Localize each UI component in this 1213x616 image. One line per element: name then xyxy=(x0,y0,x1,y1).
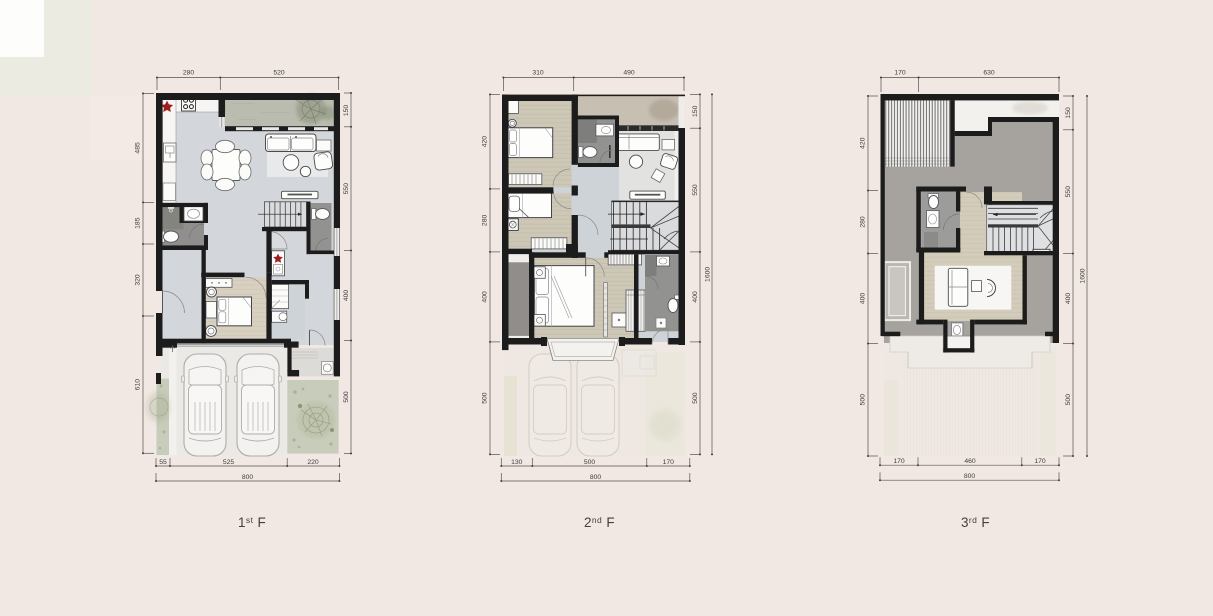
svg-text:500: 500 xyxy=(343,391,350,403)
svg-text:150: 150 xyxy=(343,105,350,117)
svg-text:170: 170 xyxy=(894,70,906,77)
svg-text:400: 400 xyxy=(692,291,699,303)
svg-text:1600: 1600 xyxy=(1080,268,1087,283)
svg-text:500: 500 xyxy=(584,459,596,466)
svg-text:185: 185 xyxy=(135,217,142,229)
svg-text:55: 55 xyxy=(159,459,167,466)
svg-text:130: 130 xyxy=(511,459,523,466)
svg-text:220: 220 xyxy=(307,459,319,466)
svg-text:280: 280 xyxy=(183,70,195,77)
svg-text:400: 400 xyxy=(1065,293,1072,305)
svg-text:280: 280 xyxy=(482,215,489,227)
svg-text:1600: 1600 xyxy=(705,267,712,282)
svg-text:550: 550 xyxy=(1065,186,1072,198)
svg-text:500: 500 xyxy=(860,394,867,406)
svg-text:170: 170 xyxy=(1034,458,1046,465)
svg-text:420: 420 xyxy=(860,137,867,149)
svg-text:460: 460 xyxy=(964,458,976,465)
svg-text:400: 400 xyxy=(343,290,350,302)
svg-text:525: 525 xyxy=(223,459,235,466)
svg-text:150: 150 xyxy=(692,105,699,117)
svg-text:800: 800 xyxy=(590,474,602,481)
svg-text:170: 170 xyxy=(663,459,675,466)
svg-text:320: 320 xyxy=(135,274,142,286)
svg-text:170: 170 xyxy=(893,458,905,465)
svg-text:485: 485 xyxy=(135,142,142,154)
svg-text:280: 280 xyxy=(860,216,867,228)
svg-text:520: 520 xyxy=(273,70,285,77)
svg-text:630: 630 xyxy=(983,70,995,77)
svg-text:500: 500 xyxy=(692,392,699,404)
svg-text:310: 310 xyxy=(532,70,544,77)
svg-text:400: 400 xyxy=(482,291,489,303)
svg-text:420: 420 xyxy=(482,136,489,148)
svg-text:500: 500 xyxy=(482,392,489,404)
svg-text:550: 550 xyxy=(692,184,699,196)
svg-text:610: 610 xyxy=(135,379,142,391)
svg-text:400: 400 xyxy=(860,293,867,305)
svg-text:500: 500 xyxy=(1065,394,1072,406)
svg-text:550: 550 xyxy=(343,183,350,195)
svg-text:800: 800 xyxy=(964,473,976,480)
svg-text:800: 800 xyxy=(242,474,254,481)
svg-text:490: 490 xyxy=(623,70,635,77)
svg-text:150: 150 xyxy=(1065,107,1072,119)
